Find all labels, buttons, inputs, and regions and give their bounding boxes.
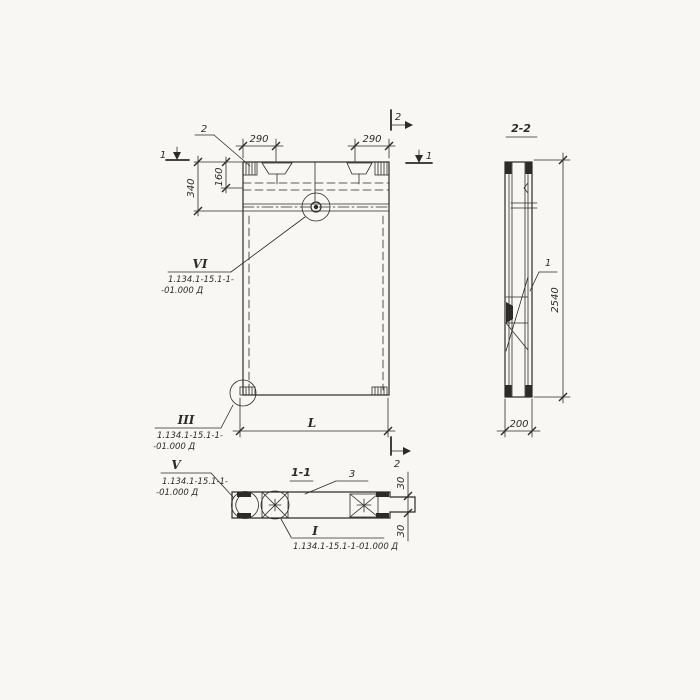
cut-mark-2-bottom: 2 (391, 437, 411, 470)
left-end-recess (236, 497, 239, 513)
detail-ref-iii-1: 1.134.1-15.1-1- (157, 431, 223, 441)
engineering-drawing: VI 1.134.1-15.1-1- -01.000 Д III 1.134.1… (0, 0, 700, 700)
position-label-1: 1 (545, 258, 551, 269)
dim-text: L (307, 416, 316, 430)
embed-mark (526, 385, 532, 397)
dim-200: 200 (497, 399, 540, 437)
cut-label: 1 (160, 150, 166, 161)
embedded-plate-top-left (243, 162, 257, 175)
dim-text: 2540 (550, 287, 561, 312)
embedded-plate-bottom-left (240, 387, 255, 395)
position-label-2: 2 (201, 124, 207, 135)
detail-callout-i: I 1.134.1-15.1-1-01.000 Д (281, 519, 398, 552)
detail-ref-v-2: -01.000 Д (156, 488, 199, 498)
dim-length: L (233, 398, 395, 437)
dim-2540: 2540 (534, 153, 570, 403)
cut-mark-2-top: 2 (391, 110, 413, 130)
dim-text: 290 (362, 134, 381, 145)
dim-text: 340 (186, 178, 197, 197)
leader-line (214, 135, 250, 166)
boxout-1 (262, 492, 288, 518)
leader-line (221, 405, 233, 428)
dim-text: 200 (509, 419, 528, 430)
cut-label: 2 (395, 112, 401, 123)
cut-label: 1 (426, 151, 432, 162)
dim-text-bottom: 30 (396, 525, 407, 538)
dim-290-right: 290 (348, 134, 395, 161)
detail-ref-vi-1: 1.134.1-15.1-1- (168, 275, 234, 285)
position-label-3: 3 (349, 469, 355, 480)
dim-30-top: 30 30 (396, 472, 412, 541)
section-1-1-view: 1-1 30 30 3 (156, 458, 415, 552)
lifting-hole-center (314, 205, 318, 209)
detail-number-vi: VI (193, 257, 208, 271)
detail-number-iii: III (177, 413, 195, 427)
embed-mark (506, 385, 512, 397)
section-title: 1-1 (291, 466, 311, 479)
dim-text: 30 (396, 477, 407, 490)
detail-ref-vi-2: -01.000 Д (161, 286, 204, 296)
section-2-2-view: 2-2 1 (497, 122, 570, 437)
detail-ref-v-1: 1.134.1-15.1-1- (162, 477, 228, 487)
embedded-plate-top-right (375, 162, 389, 175)
recess-left (262, 163, 292, 174)
leader-line (231, 217, 305, 272)
leader-line (281, 519, 291, 537)
panel-outline (243, 162, 389, 395)
recess-right (347, 163, 372, 174)
cut-mark-1-left: 1 (160, 147, 189, 161)
position-leader-2: 2 (195, 124, 250, 166)
detail-ref-i: 1.134.1-15.1-1-01.000 Д (293, 542, 398, 552)
dim-text: 290 (249, 134, 268, 145)
cut-label: 2 (394, 459, 400, 470)
detail-callout-v: V 1.134.1-15.1-1- -01.000 Д (156, 458, 233, 498)
drawing-sheet: VI 1.134.1-15.1-1- -01.000 Д III 1.134.1… (0, 0, 700, 700)
cut-mark-1-right: 1 (406, 150, 432, 163)
embed-mark (506, 162, 512, 174)
boxout-2 (350, 494, 378, 517)
embedded-plate-bottom-right (372, 387, 387, 395)
detail-callout-vi: VI 1.134.1-15.1-1- -01.000 Д (161, 217, 305, 296)
detail-callout-iii: III 1.134.1-15.1-1- -01.000 Д (153, 405, 233, 452)
front-view: VI 1.134.1-15.1-1- -01.000 Д III 1.134.1… (153, 110, 432, 470)
dim-290-left: 290 (236, 134, 283, 161)
position-leader-1: 1 (530, 258, 557, 291)
section-title: 2-2 (511, 122, 531, 135)
leader-line (530, 272, 539, 291)
detail-number-v: V (171, 458, 182, 472)
detail-number-i: I (311, 524, 318, 538)
embed-mark (526, 162, 532, 174)
detail-ref-iii-2: -01.000 Д (153, 442, 196, 452)
dim-text: 160 (214, 167, 225, 186)
position-leader-3: 3 (305, 469, 368, 494)
